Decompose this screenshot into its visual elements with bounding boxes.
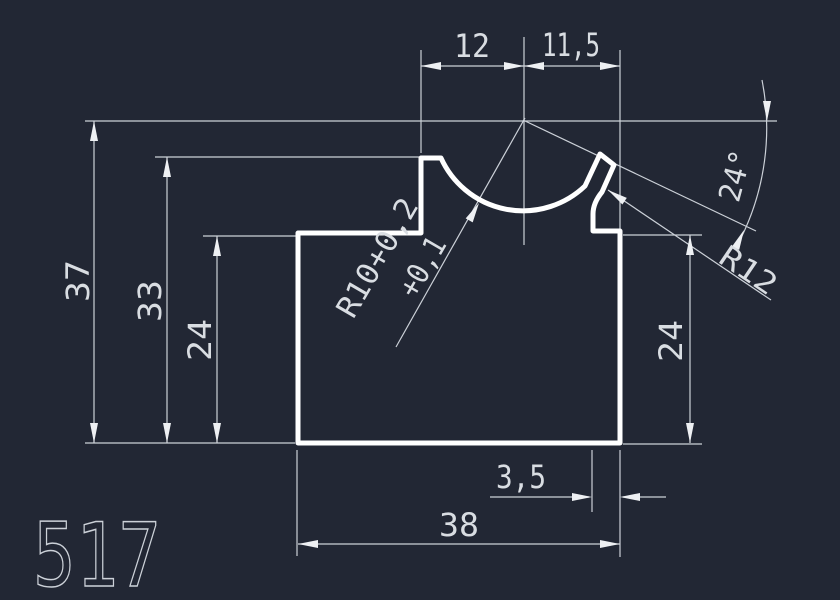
dim-label-top-width-right: 11,5 [542, 26, 600, 64]
part-number-label: 517 [33, 504, 161, 600]
dim-label-step-height: 33 [131, 280, 169, 322]
dim-label-bottom-offset: 3,5 [496, 458, 546, 496]
dim-label-bottom-width: 38 [439, 506, 479, 544]
dim-label-left-shoulder-height: 24 [181, 319, 219, 361]
dim-label-right-shoulder-height: 24 [652, 320, 690, 362]
cad-viewport: 12 11,5 37 33 24 24 3,5 38 R10+0,2 +0,1 … [0, 0, 840, 600]
dim-label-total-height: 37 [59, 260, 97, 302]
dim-label-top-width-left: 12 [454, 27, 490, 65]
cad-drawing-canvas[interactable]: 12 11,5 37 33 24 24 3,5 38 R10+0,2 +0,1 … [0, 0, 840, 600]
